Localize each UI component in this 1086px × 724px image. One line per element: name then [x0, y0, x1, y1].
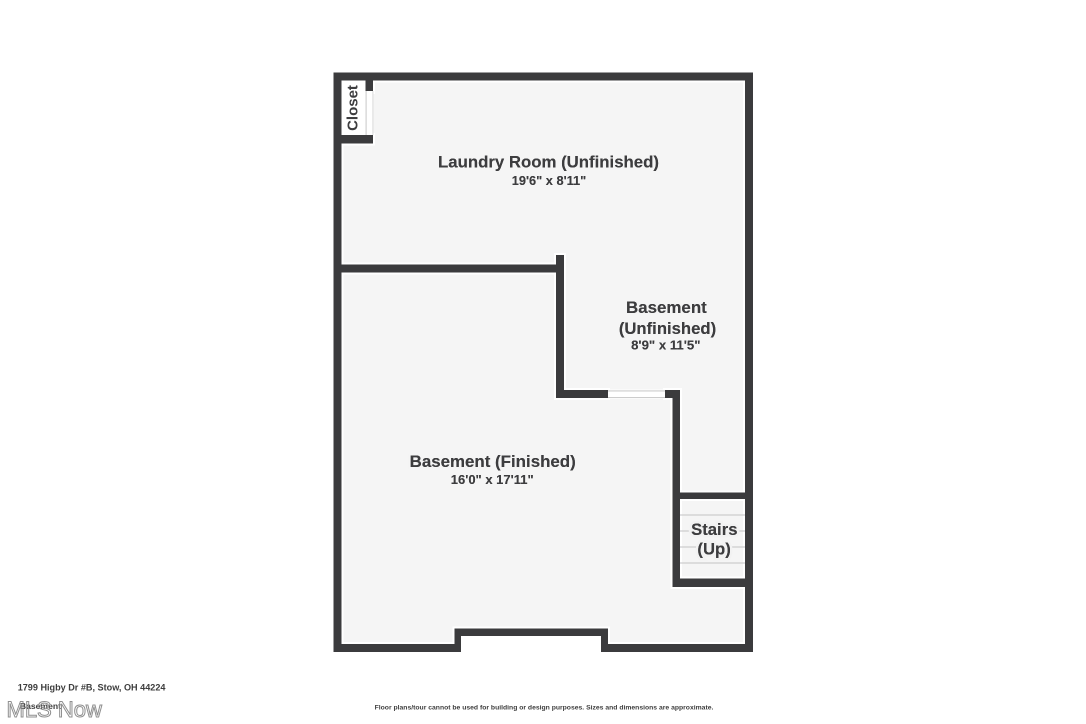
svg-text:Stairs: Stairs — [691, 520, 737, 539]
svg-text:(Up): (Up) — [697, 540, 730, 559]
svg-text:Basement (Finished): Basement (Finished) — [410, 452, 576, 471]
svg-text:Basement: Basement — [626, 298, 707, 317]
svg-text:MLS Now: MLS Now — [7, 697, 102, 722]
svg-text:Closet: Closet — [345, 85, 362, 131]
svg-text:1799 Higby Dr #B, Stow, OH 442: 1799 Higby Dr #B, Stow, OH 44224 — [18, 683, 167, 693]
svg-text:16'0" x 17'11": 16'0" x 17'11" — [451, 472, 534, 487]
svg-text:Floor plans/tour cannot be use: Floor plans/tour cannot be used for buil… — [375, 705, 714, 712]
svg-text:8'9" x 11'5": 8'9" x 11'5" — [631, 338, 700, 353]
svg-text:Laundry Room (Unfinished): Laundry Room (Unfinished) — [438, 153, 659, 172]
svg-text:(Unfinished): (Unfinished) — [619, 319, 716, 338]
svg-text:19'6" x 8'11": 19'6" x 8'11" — [512, 173, 586, 188]
